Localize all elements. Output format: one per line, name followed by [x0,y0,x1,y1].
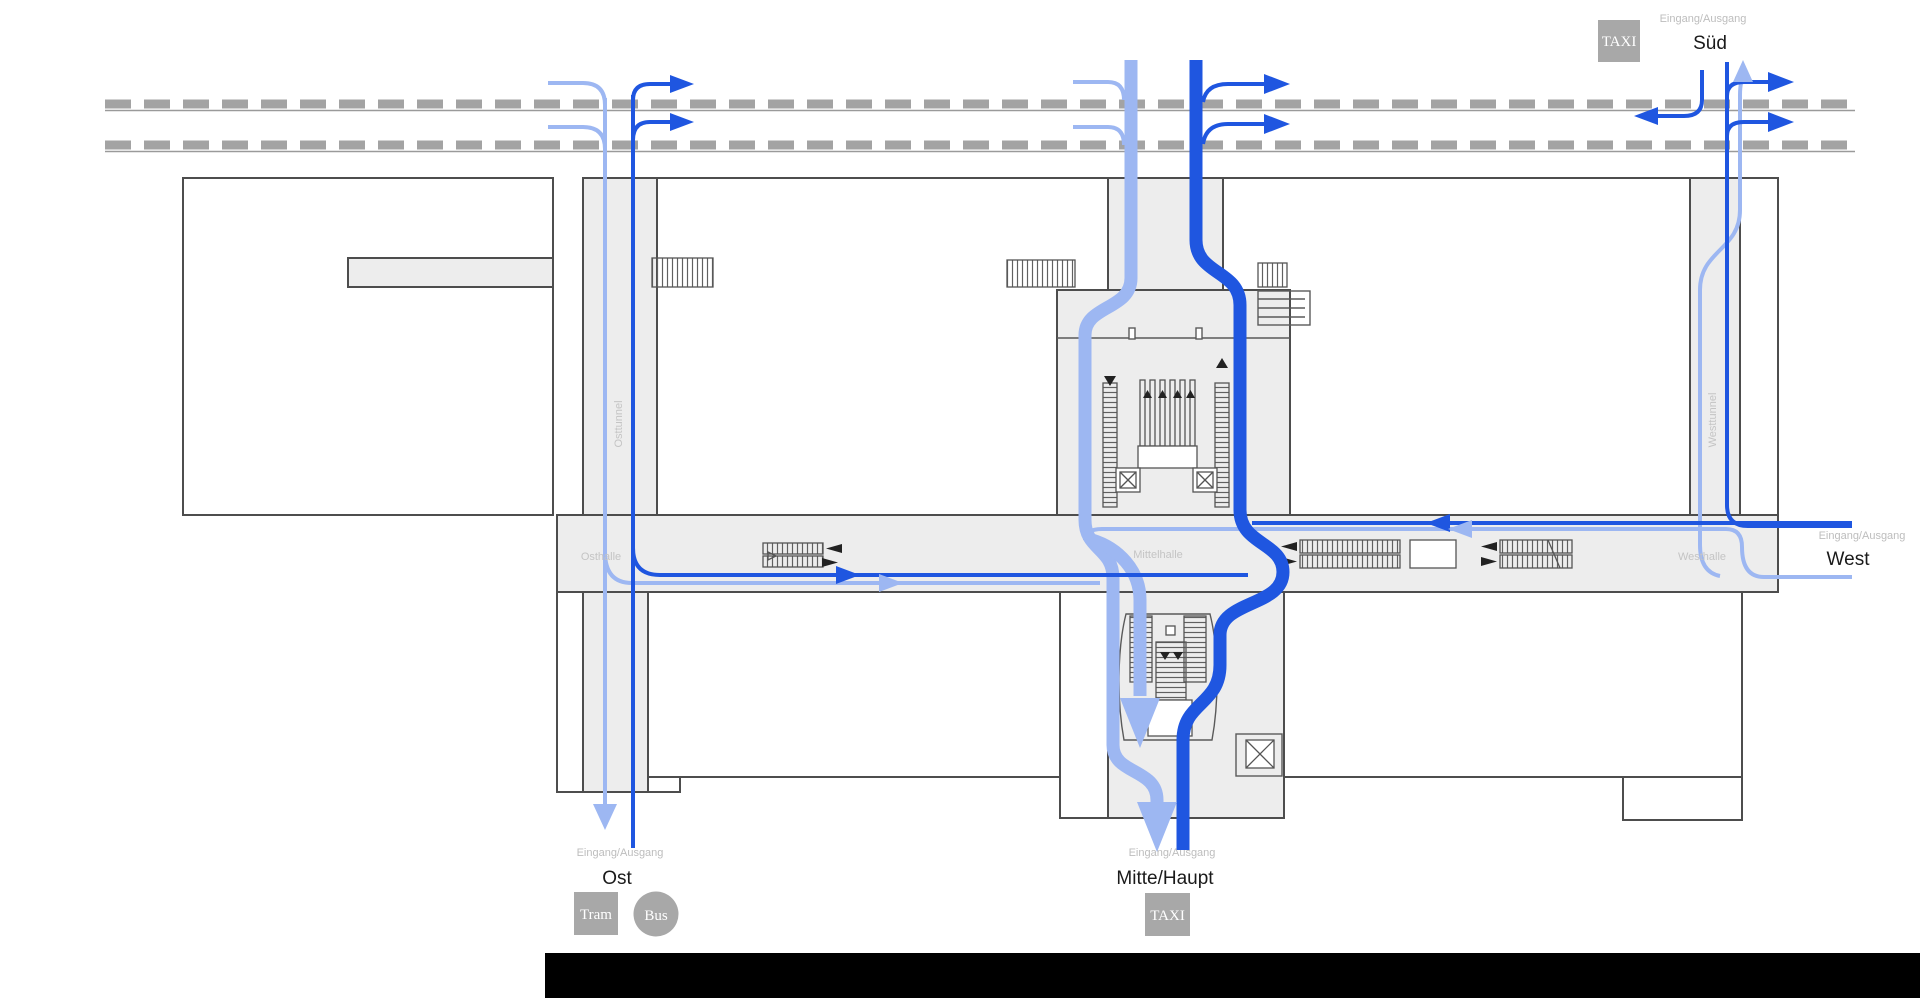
tram-badge: Tram [574,892,618,935]
entrance-mitte-name: Mitte/Haupt [1116,868,1214,889]
south-right-block [1284,592,1742,777]
station-floor-plan-svg: Eingang/Ausgang Süd Eingang/Ausgang West… [0,0,1920,998]
arrow-right-icon [1768,72,1794,92]
westtunnel-strip [1690,178,1740,515]
south-mid-sliver [1060,592,1108,818]
south-right-pocket [1623,777,1742,820]
taxi-badge-mitte: TAXI [1145,893,1190,936]
arrow-down-icon [593,804,617,830]
tram-badge-label: Tram [580,907,612,923]
arrow-left-icon [1634,107,1658,125]
elevator-icon [1193,468,1217,492]
flow-dark-branch [1727,82,1770,96]
arrow-down-icon [1137,802,1177,852]
bus-badge: Bus [634,892,679,937]
south-left-step [648,777,680,792]
entrance-sued-type-label: Eingang/Ausgang [1660,13,1747,25]
elevator-icon [1236,734,1282,776]
stairs-icon [1258,263,1287,287]
entrance-west-type-label: Eingang/Ausgang [1819,530,1906,542]
room-right-wing [1740,178,1778,515]
label-westtunnel: Westtunnel [1707,393,1719,448]
hall-left-wing [183,178,553,515]
entrance-mitte-type-label: Eingang/Ausgang [1129,847,1216,859]
stairs-icon [652,258,713,287]
entrance-west-name: West [1827,549,1871,570]
flow-light-feeder [1073,82,1124,100]
taxi-badge-label: TAXI [1602,34,1637,50]
hall-center-left [657,178,1108,515]
arrow-up-icon [1733,60,1753,82]
flow-dark-branch [633,122,672,140]
label-osthalle: Osthalle [581,551,621,563]
escalator-down-icon [1103,364,1117,507]
label-mittelhalle: Mittelhalle [1133,549,1183,561]
station-map-screenshot: Eingang/Ausgang Süd Eingang/Ausgang West… [0,0,1920,998]
arrow-right-icon [1768,112,1794,132]
kiosk-box [1410,540,1456,568]
entrance-ost-type-label: Eingang/Ausgang [577,847,664,859]
hall-center-right [1223,178,1690,515]
south-sliver-room [557,592,583,792]
bus-badge-label: Bus [644,908,668,924]
flow-dark-sued-in [1652,70,1702,116]
entrance-sued-name: Süd [1693,33,1727,54]
label-westhalle: Westhalle [1678,551,1726,563]
flow-dark-branch [1727,122,1770,136]
railway-tracks [105,104,1855,152]
label-osttunnel: Osttunnel [613,400,625,447]
flow-dark-branch [1203,84,1266,102]
osttunnel-strip [583,178,657,515]
taxi-badge-sued: TAXI [1598,20,1640,62]
osttunnel-south [583,592,657,792]
entrance-ost-name: Ost [602,868,632,889]
corridor-left [348,258,553,287]
arrow-right-icon [1264,114,1290,134]
building-outline [183,178,1778,820]
taxi-badge-label: TAXI [1150,908,1185,924]
bottom-black-bar [545,953,1920,998]
arrow-right-icon [670,75,694,93]
stairs-icon [1007,260,1075,287]
flow-dark-branch [633,84,672,100]
arrow-right-icon [670,113,694,131]
south-left-block [648,592,1060,777]
elevator-icon [1116,468,1140,492]
arrow-right-icon [1264,74,1290,94]
